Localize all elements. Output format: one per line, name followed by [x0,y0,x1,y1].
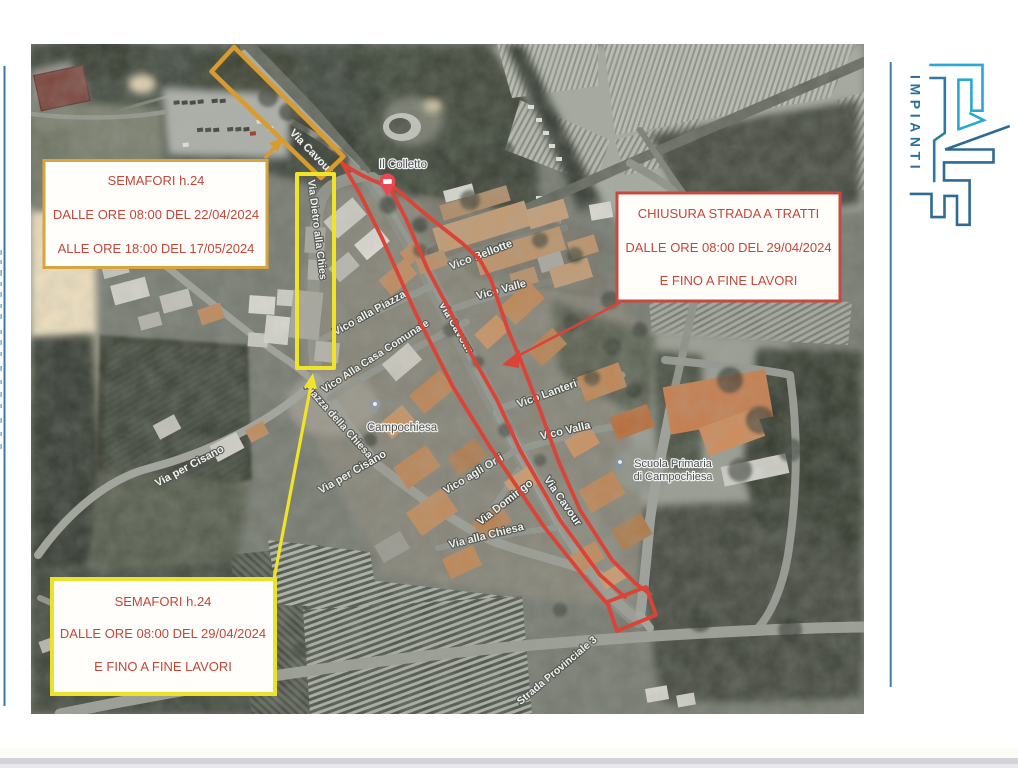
svg-text:IMPIANTI: IMPIANTI [908,75,924,173]
svg-text:DALLE ORE 08:00 DEL 22/04/2024: DALLE ORE 08:00 DEL 22/04/2024 [53,207,259,222]
svg-text:E FINO A FINE LAVORI: E FINO A FINE LAVORI [660,273,798,288]
svg-text:E FINO A FINE LAVORI: E FINO A FINE LAVORI [94,659,232,674]
svg-text:SEMAFORI h.24: SEMAFORI h.24 [115,594,212,609]
svg-text:SEMAFORI h.24: SEMAFORI h.24 [108,173,205,188]
svg-text:DALLE ORE 08:00 DEL 29/04/2024: DALLE ORE 08:00 DEL 29/04/2024 [625,240,831,255]
svg-text:CHIUSURA STRADA A TRATTI: CHIUSURA STRADA A TRATTI [638,206,820,221]
svg-text:ALLE ORE 18:00 DEL 17/05/2024: ALLE ORE 18:00 DEL 17/05/2024 [58,241,255,256]
svg-text:DALLE ORE 08:00 DEL 29/04/2024: DALLE ORE 08:00 DEL 29/04/2024 [60,626,266,641]
